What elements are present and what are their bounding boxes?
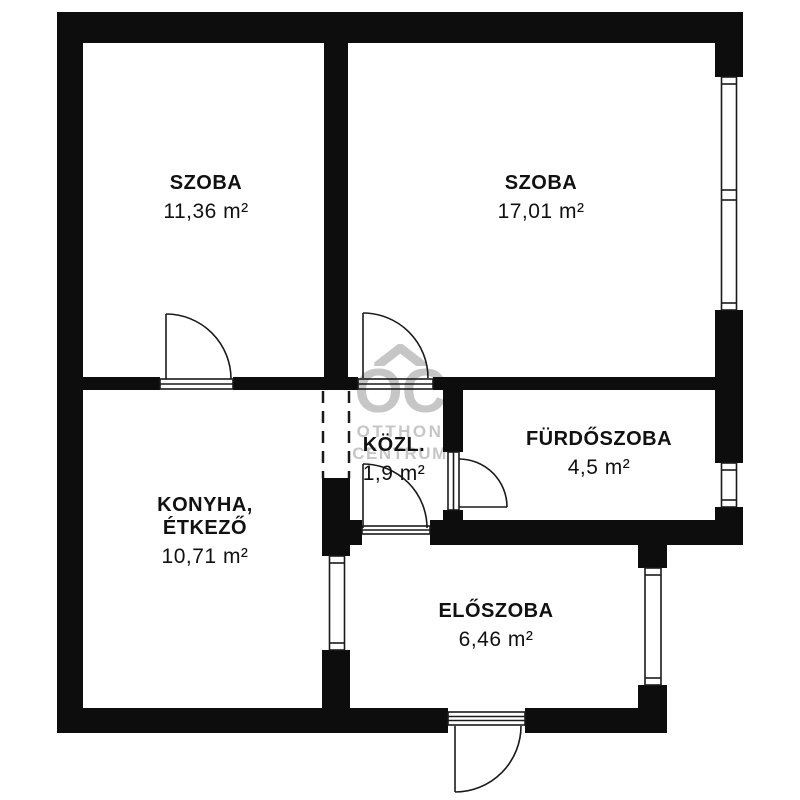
room-name: SZOBA [498, 172, 585, 195]
plan-symbols [0, 0, 800, 800]
room-area: 17,01 m² [498, 200, 585, 224]
room-label-szoba-2: SZOBA 17,01 m² [498, 172, 585, 224]
room-label-furdoszoba: FÜRDŐSZOBA 4,5 m² [526, 428, 672, 480]
room-name: SZOBA [163, 172, 248, 195]
window-szoba2-right [722, 77, 737, 310]
room-name-line2: ÉTKEZŐ [157, 517, 253, 540]
door-szoba1 [166, 314, 231, 379]
threshold-szoba2-door [358, 379, 433, 389]
threshold-entrance-door [448, 712, 525, 725]
room-name: ELŐSZOBA [438, 600, 553, 623]
room-label-eloszoba: ELŐSZOBA 6,46 m² [438, 600, 553, 652]
door-entrance [455, 726, 521, 792]
room-label-kozlekedo: KÖZL. 1,9 m² [363, 434, 426, 486]
room-label-konyha-etkezo: KONYHA, ÉTKEZŐ 10,71 m² [157, 494, 253, 569]
room-area: 10,71 m² [157, 545, 253, 569]
room-name: KONYHA, [157, 494, 253, 517]
window-furdoszoba-right [722, 463, 737, 507]
room-name: FÜRDŐSZOBA [526, 428, 672, 451]
room-area: 1,9 m² [363, 462, 426, 486]
open-boundary-dashed [323, 391, 349, 478]
window-konyha-eloszoba [330, 556, 345, 650]
room-label-szoba-1: SZOBA 11,36 m² [163, 172, 248, 224]
threshold-szoba1-door [160, 379, 233, 389]
room-area: 4,5 m² [526, 456, 672, 480]
room-name: KÖZL. [363, 434, 426, 457]
window-eloszoba-right [645, 568, 661, 685]
room-area: 6,46 m² [438, 628, 553, 652]
threshold-eloszoba-kozl-door [362, 526, 430, 534]
door-szoba2 [363, 313, 428, 378]
room-area: 11,36 m² [163, 200, 248, 224]
door-furdoszoba [459, 459, 507, 507]
floor-plan: OC OTTHON CENTRUM [0, 0, 800, 800]
threshold-furdoszoba-door [448, 452, 459, 510]
